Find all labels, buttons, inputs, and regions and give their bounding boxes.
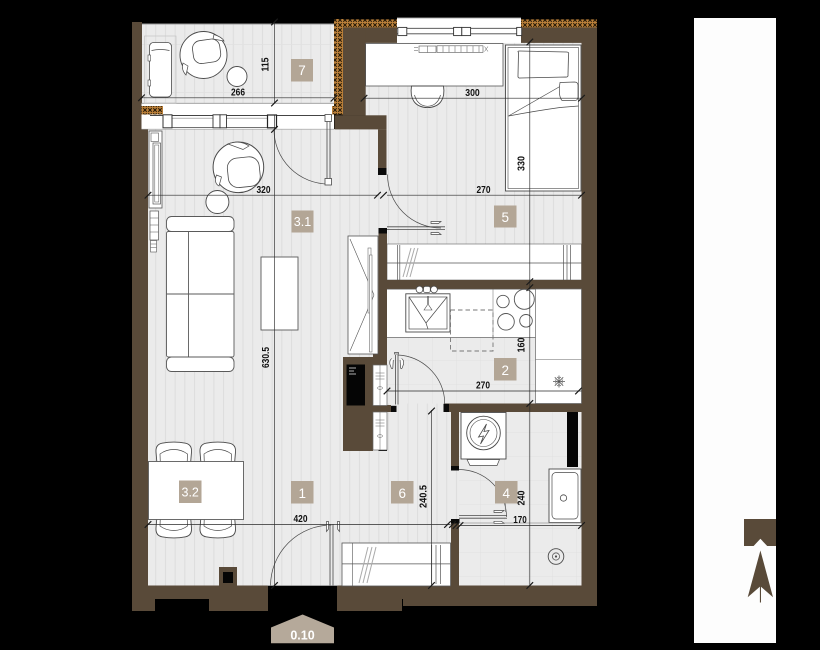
svg-text:3.2: 3.2 (182, 486, 199, 500)
svg-text:5: 5 (501, 210, 509, 225)
svg-text:270: 270 (476, 380, 490, 392)
svg-text:0.10: 0.10 (290, 629, 314, 643)
svg-text:6: 6 (398, 486, 406, 501)
svg-text:170: 170 (513, 514, 527, 526)
svg-text:266: 266 (231, 87, 245, 99)
svg-text:2: 2 (501, 363, 509, 378)
svg-text:1: 1 (298, 486, 306, 501)
svg-text:320: 320 (257, 184, 271, 196)
svg-text:330: 330 (516, 156, 528, 171)
svg-text:7: 7 (298, 63, 306, 78)
svg-text:240.5: 240.5 (417, 485, 429, 508)
svg-text:115: 115 (260, 57, 272, 71)
svg-text:630.5: 630.5 (260, 347, 272, 368)
svg-text:420: 420 (294, 513, 308, 525)
svg-text:300: 300 (465, 87, 480, 99)
svg-text:160: 160 (516, 337, 528, 352)
svg-text:270: 270 (477, 184, 491, 196)
svg-text:3.1: 3.1 (294, 215, 311, 229)
svg-text:4: 4 (502, 486, 510, 501)
